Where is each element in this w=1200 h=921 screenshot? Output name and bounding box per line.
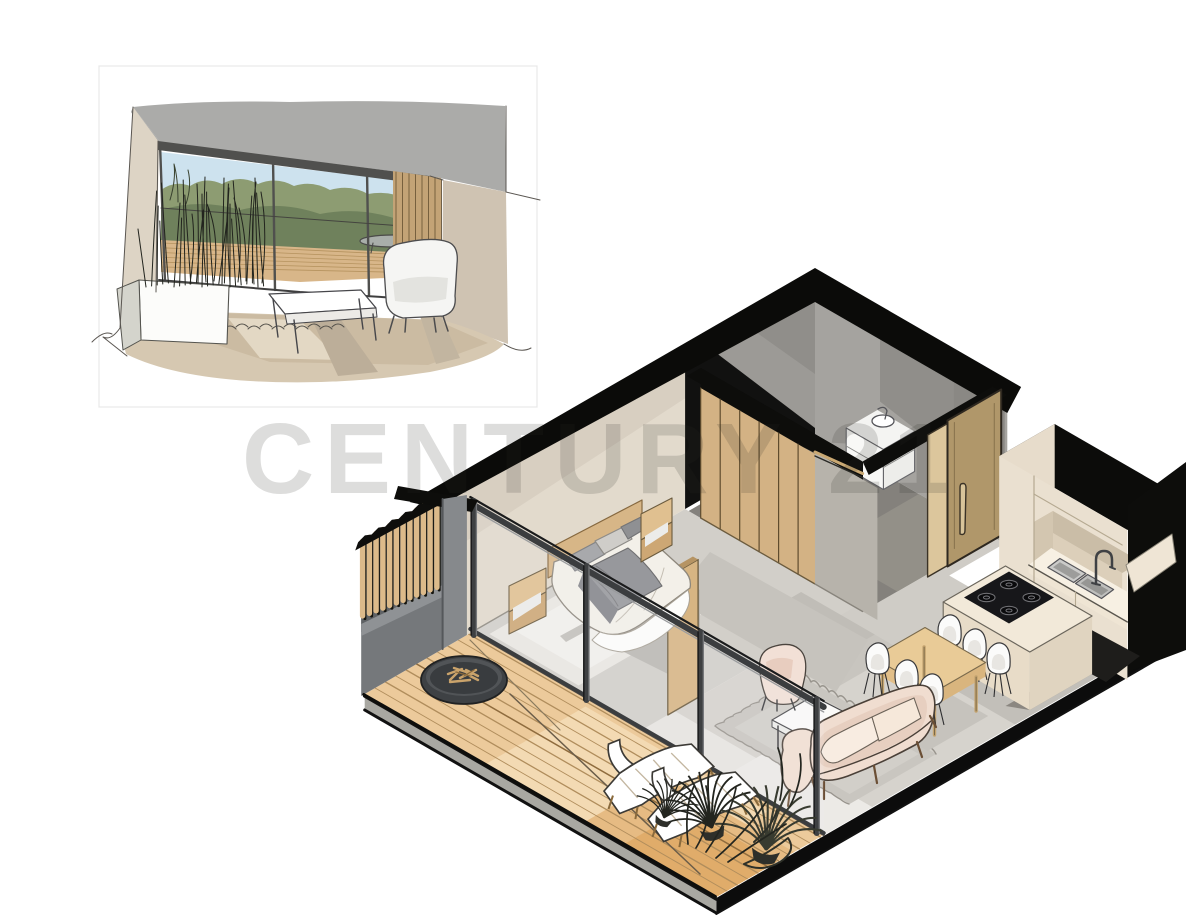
svg-text:CENTURY 21: CENTURY 21 (242, 403, 959, 515)
